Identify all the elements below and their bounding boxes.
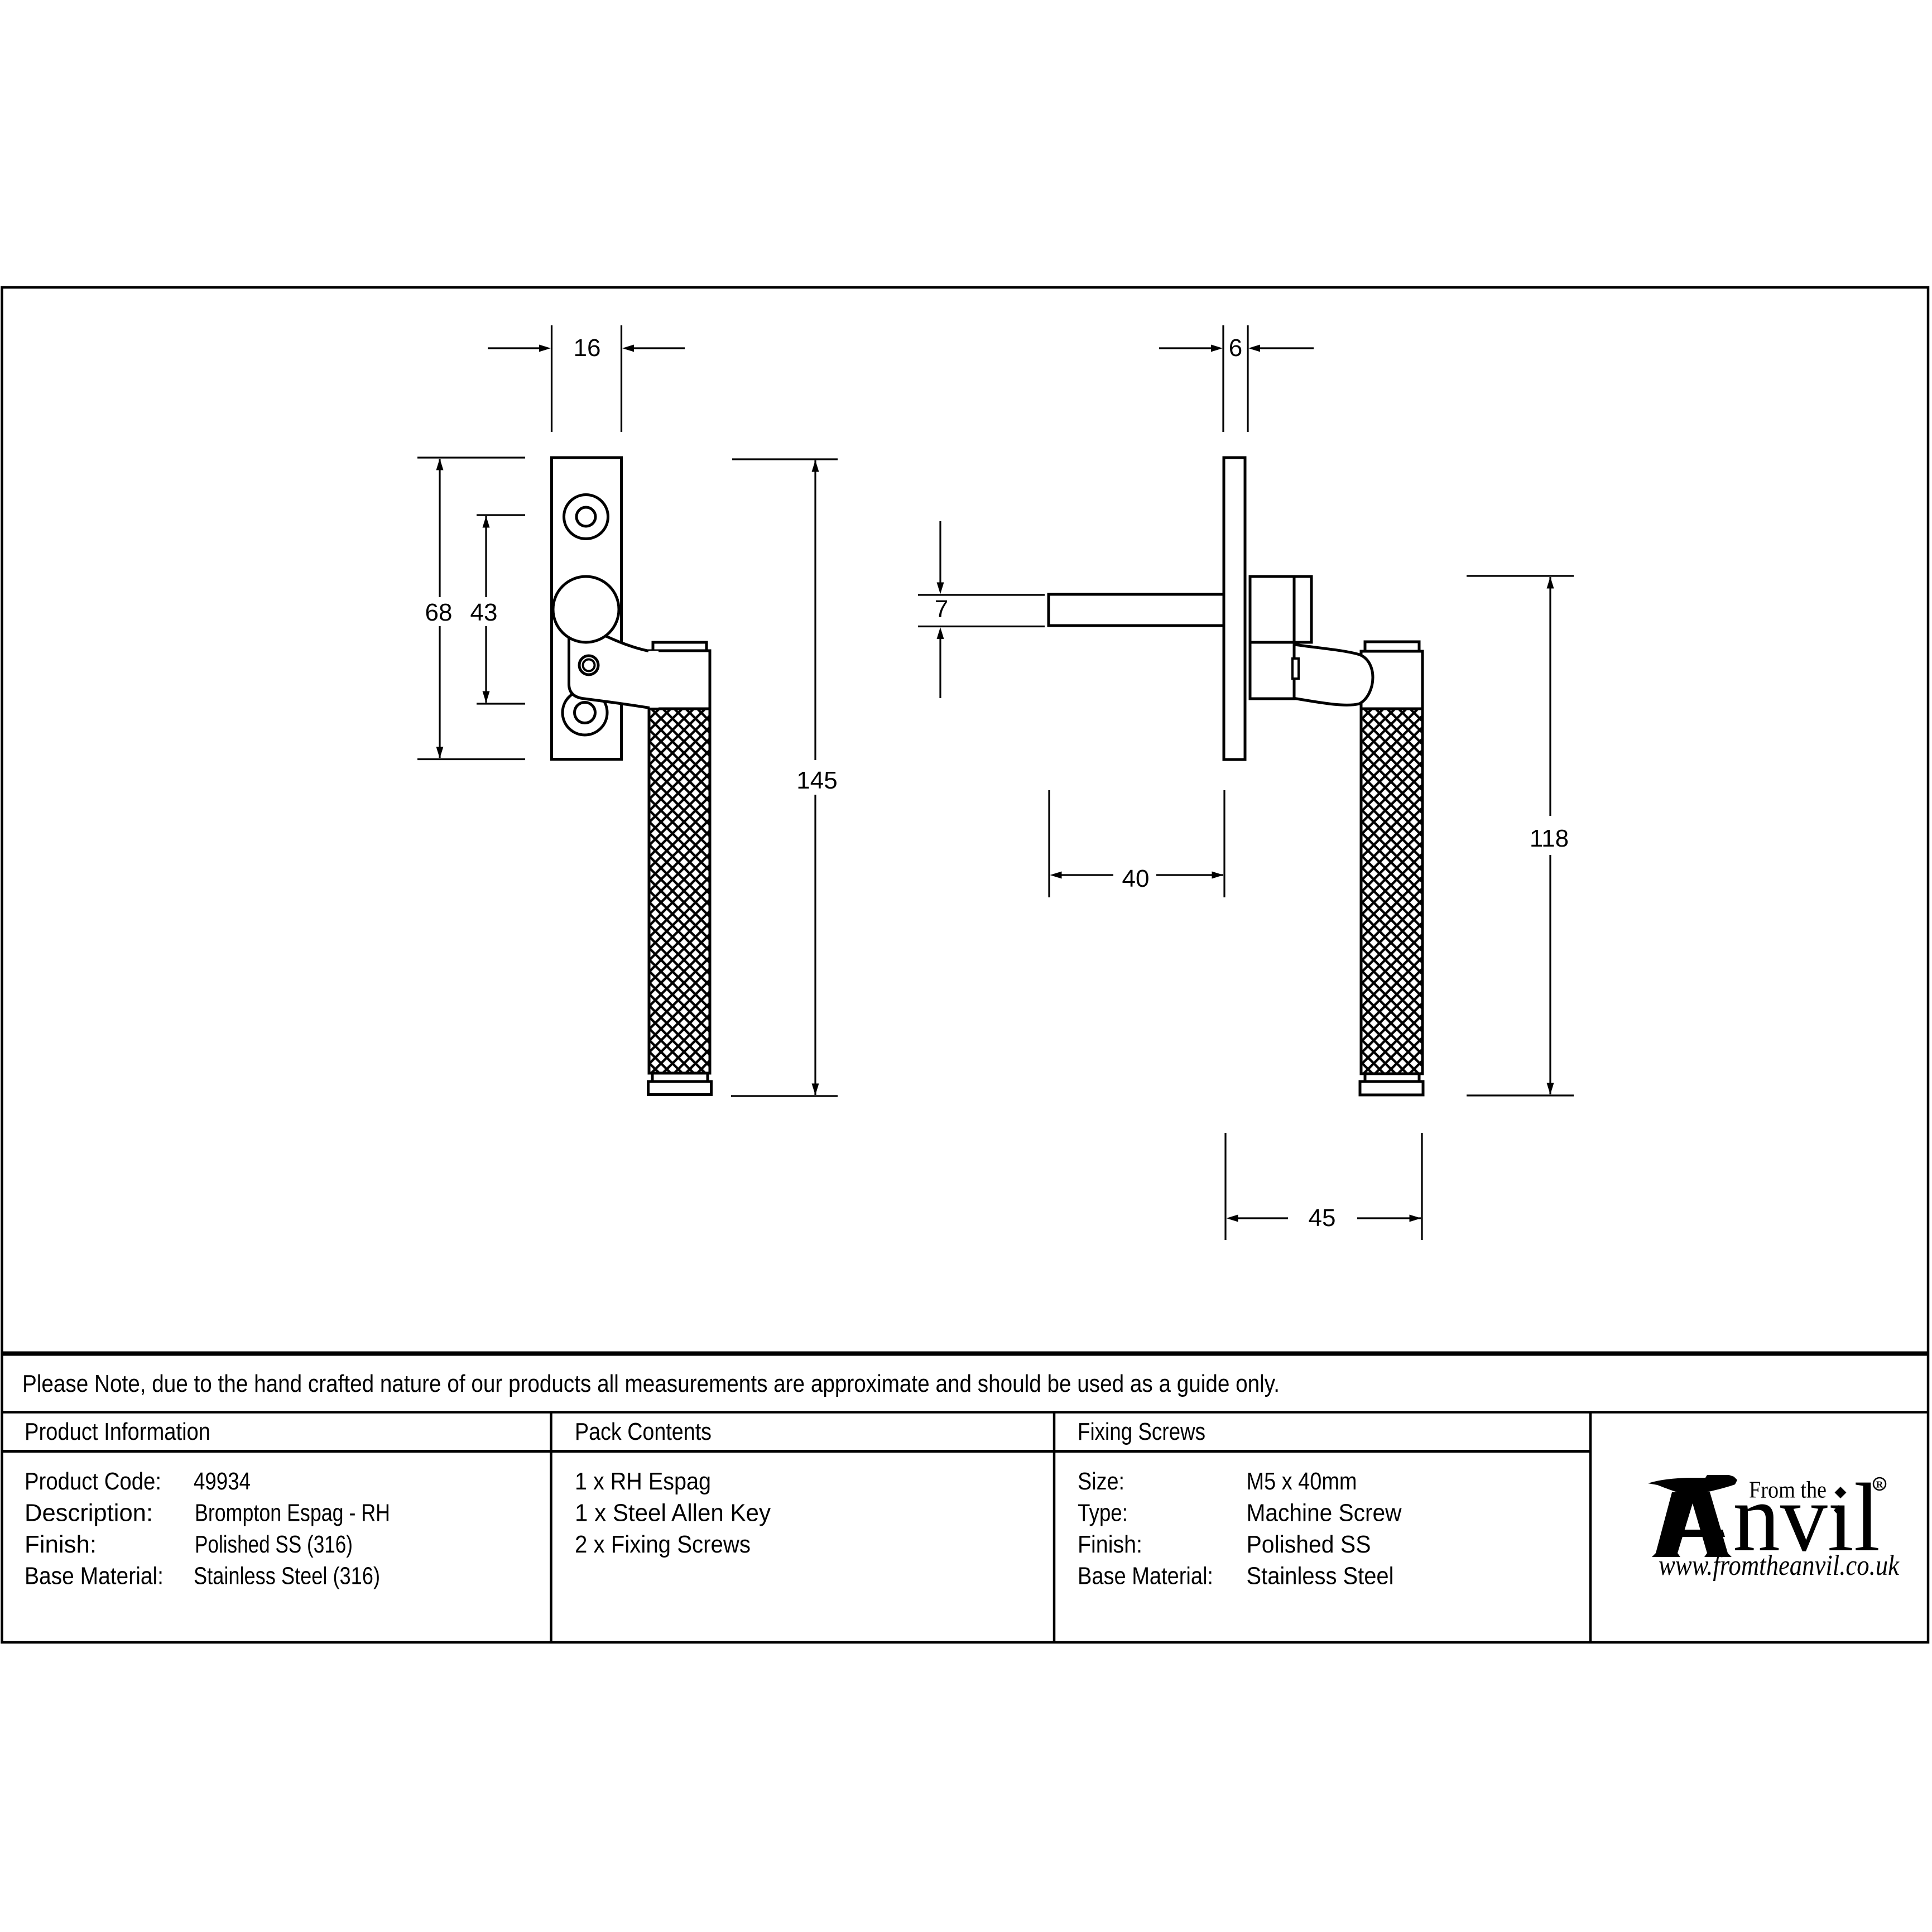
svg-text:Type:: Type: — [1078, 1500, 1128, 1527]
svg-text:43: 43 — [470, 599, 498, 626]
svg-text:Brompton Espag - RH: Brompton Espag - RH — [195, 1500, 390, 1527]
svg-text:Polished SS: Polished SS — [1247, 1531, 1371, 1558]
svg-text:M5 x 40mm: M5 x 40mm — [1247, 1468, 1357, 1495]
svg-text:1 x Steel Allen Key: 1 x Steel Allen Key — [575, 1500, 771, 1527]
svg-text:Product Information: Product Information — [25, 1418, 210, 1445]
svg-text:6: 6 — [1229, 334, 1242, 362]
svg-text:Polished SS (316): Polished SS (316) — [195, 1531, 353, 1558]
svg-text:Stainless Steel (316): Stainless Steel (316) — [194, 1563, 380, 1590]
svg-text:7: 7 — [935, 595, 948, 623]
svg-text:Machine Screw: Machine Screw — [1247, 1500, 1402, 1527]
svg-text:Finish:: Finish: — [1078, 1531, 1142, 1558]
svg-text:1 x RH Espag: 1 x RH Espag — [575, 1468, 711, 1495]
svg-text:Description:: Description: — [25, 1500, 153, 1527]
svg-text:www.fromtheanvil.co.uk: www.fromtheanvil.co.uk — [1659, 1550, 1900, 1582]
svg-text:Base Material:: Base Material: — [1078, 1563, 1213, 1590]
svg-text:Pack Contents: Pack Contents — [575, 1418, 712, 1445]
svg-text:R: R — [1876, 1479, 1883, 1490]
svg-text:Fixing Screws: Fixing Screws — [1078, 1418, 1205, 1445]
svg-text:Stainless Steel: Stainless Steel — [1247, 1563, 1394, 1590]
svg-text:Base Material:: Base Material: — [25, 1563, 164, 1590]
svg-text:16: 16 — [574, 334, 601, 362]
svg-text:Finish:: Finish: — [25, 1531, 97, 1558]
svg-text:40: 40 — [1122, 865, 1150, 892]
svg-text:118: 118 — [1530, 825, 1569, 852]
svg-text:Size:: Size: — [1078, 1468, 1124, 1495]
svg-text:68: 68 — [425, 599, 453, 626]
svg-text:45: 45 — [1309, 1204, 1336, 1232]
svg-text:145: 145 — [796, 767, 837, 794]
svg-text:2 x Fixing Screws: 2 x Fixing Screws — [575, 1531, 751, 1558]
svg-text:Please Note, due to the hand c: Please Note, due to the hand crafted nat… — [22, 1370, 1280, 1397]
svg-text:Product Code:: Product Code: — [25, 1468, 161, 1495]
svg-text:49934: 49934 — [194, 1468, 251, 1495]
